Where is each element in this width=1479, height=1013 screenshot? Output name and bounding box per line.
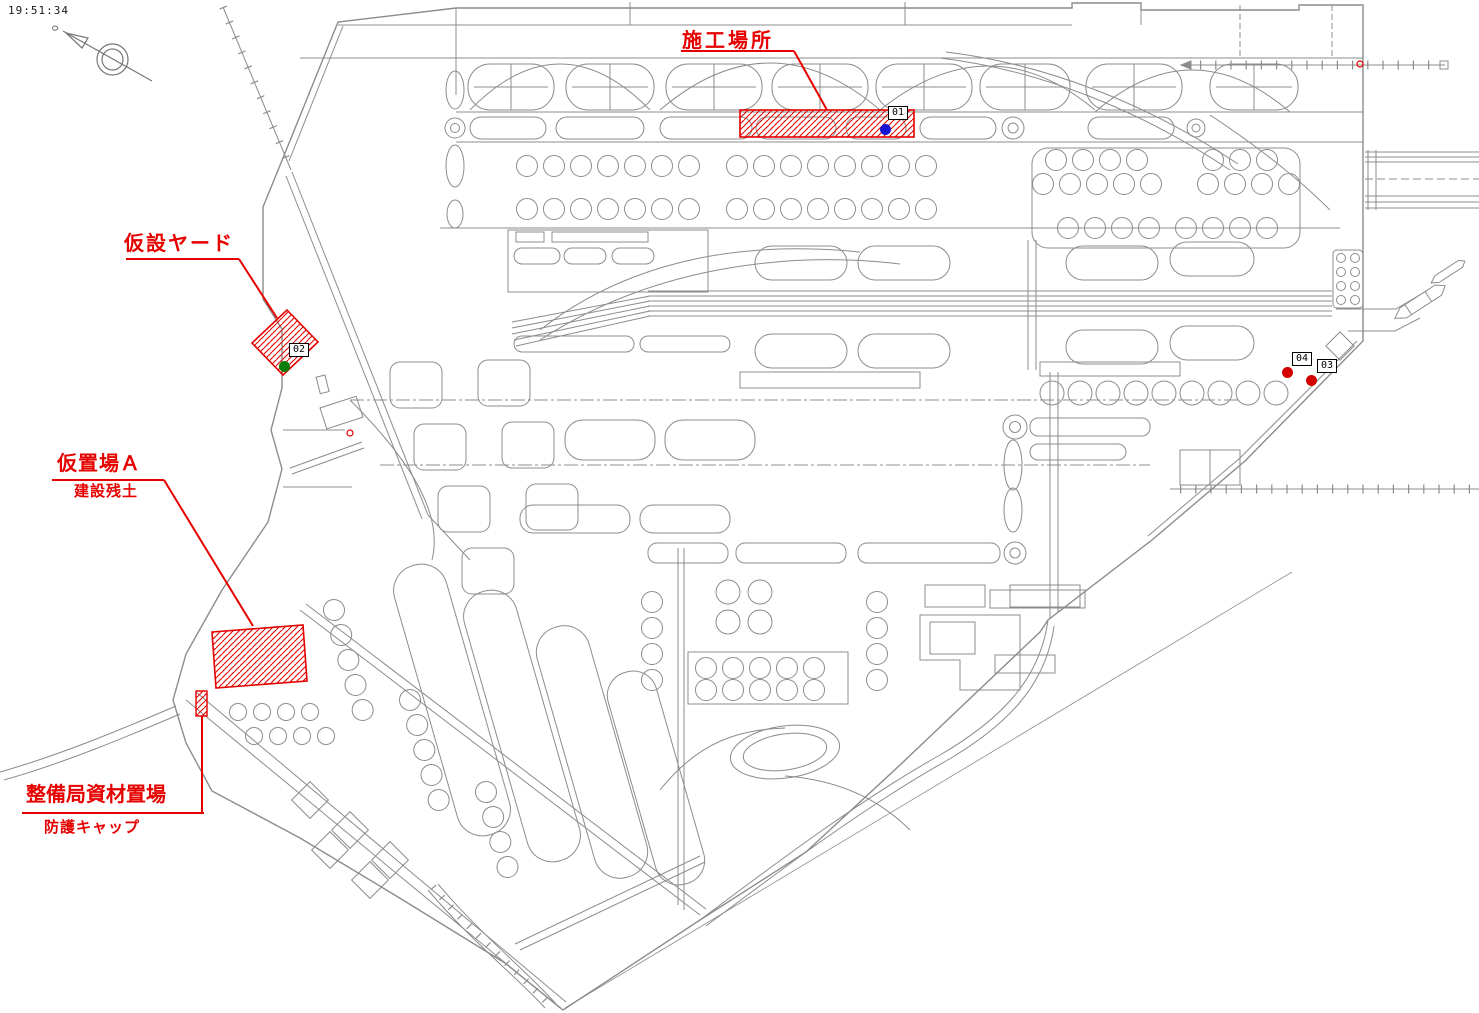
marker-03[interactable]: 03 — [1317, 359, 1337, 373]
right-piers — [1181, 61, 1479, 360]
plot-timestamp: 19:51:34 — [8, 4, 69, 17]
temporary-storage-a-hatch — [212, 625, 307, 688]
apron-stand-circles-top — [517, 148, 1301, 248]
coast-roads — [0, 572, 1292, 1008]
site-boundary — [173, 2, 1363, 1010]
maintenance-storage-label: 整備局資材置場 — [26, 783, 166, 805]
boundary-fence — [223, 7, 428, 519]
boat-icon — [1392, 281, 1449, 324]
marker-02-dot — [279, 361, 290, 372]
temporary-storage-a-sublabel: 建設残土 — [74, 483, 138, 500]
temporary-storage-a-callout — [52, 480, 307, 688]
small-red-circle-mark — [347, 430, 353, 436]
terminal-complex — [508, 230, 1332, 388]
temporary-storage-a-label: 仮置場Ａ — [57, 452, 141, 474]
lower-apron-corridors — [300, 515, 710, 915]
maintenance-storage-sublabel: 防護キャップ — [44, 819, 140, 836]
temporary-yard-callout — [126, 259, 318, 375]
marker-04-dot — [1282, 367, 1293, 378]
marker-01[interactable]: 01 — [888, 106, 908, 120]
marker-04[interactable]: 04 — [1292, 352, 1312, 366]
temporary-yard-label: 仮設ヤード — [124, 232, 234, 254]
mid-taxiways — [350, 360, 1479, 618]
buildings-mid — [920, 585, 1085, 690]
site-plan-page: 19:51:34 施工場所 仮設ヤード 仮置場Ａ 建設残土 整備局資材置場 防護… — [0, 0, 1479, 1013]
marker-02[interactable]: 02 — [289, 343, 309, 357]
construction-site-label: 施工場所 — [682, 29, 774, 51]
maintenance-storage-hatch — [196, 691, 207, 716]
site-plan-drawing — [0, 0, 1479, 1013]
marker-01-dot — [880, 124, 891, 135]
boat-icon — [1429, 258, 1467, 286]
small-red-circle-mark — [1357, 61, 1363, 67]
apron-stands-mid — [642, 548, 888, 910]
north-compass-icon — [53, 26, 152, 81]
marker-03-dot — [1306, 375, 1317, 386]
annotation-overlay — [22, 51, 1363, 813]
